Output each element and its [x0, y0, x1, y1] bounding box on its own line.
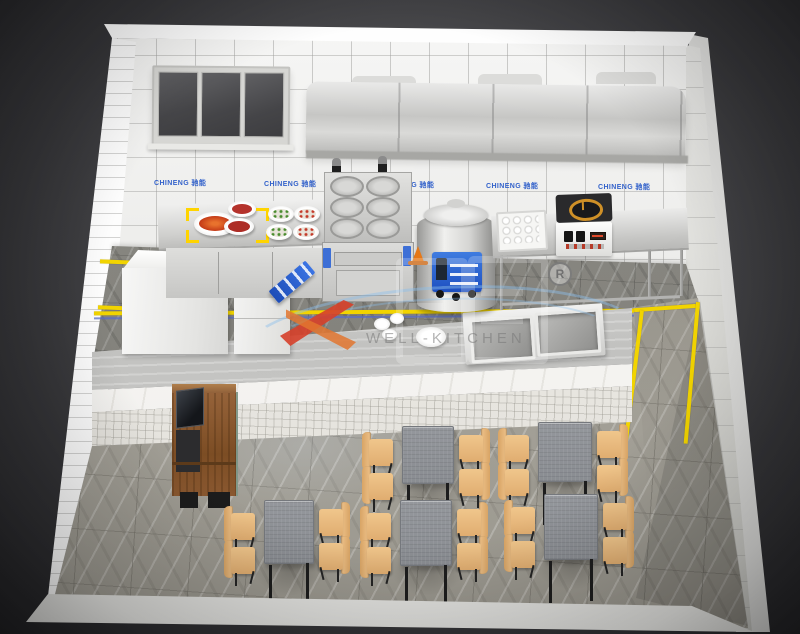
window-pane [158, 71, 199, 136]
brand-banner: CHINENG 驰能 [264, 179, 316, 190]
dining-table [264, 500, 314, 564]
induction-dial-needle [582, 202, 584, 210]
soup-kettle-knob [436, 290, 444, 298]
cashier-station [172, 384, 236, 508]
meat-plate [228, 201, 256, 217]
soup-kettle-lid-knob [447, 199, 465, 208]
cooker-knob [576, 231, 585, 242]
noodle-cooker-control-panel [323, 248, 331, 268]
meat-food [232, 204, 252, 214]
noodle-cooker-drawer [334, 252, 402, 266]
salad-food [298, 209, 316, 219]
salad-food [297, 227, 315, 237]
sink-basin [469, 315, 536, 363]
dining-chair [600, 528, 634, 576]
kitchen-3d-rendering: CHINENG 驰能 CHINENG 驰能 CHINENG 驰能 CHINENG… [0, 0, 800, 634]
dining-chair [360, 538, 394, 586]
focus-bracket [186, 230, 199, 243]
dining-set [504, 488, 636, 586]
noodle-basket [366, 218, 400, 239]
dining-table [544, 494, 598, 560]
safety-cone-base [408, 261, 428, 265]
window [152, 65, 291, 146]
counter-bowl [382, 329, 397, 340]
window-sill [148, 143, 294, 150]
safety-cone [412, 246, 424, 262]
dining-chair [224, 538, 258, 586]
salad-bowl [266, 224, 292, 240]
noodle-basket [330, 176, 364, 197]
dining-table [402, 426, 454, 484]
salad-bowl [293, 224, 319, 240]
cooker-temperature-strip [566, 244, 604, 249]
induction-cooktop [556, 193, 613, 223]
window-pane [201, 72, 242, 137]
soup-kettle-label [432, 252, 482, 292]
dining-table [400, 500, 452, 566]
soup-kettle-knob [452, 293, 460, 301]
noodle-basket [330, 197, 364, 218]
noodle-basket [330, 218, 364, 239]
brand-banner: CHINENG 驰能 [486, 181, 538, 192]
induction-cooker-base [556, 222, 612, 256]
dining-chair [316, 534, 350, 582]
noodle-basket [366, 197, 400, 218]
counter-bowl-large [416, 327, 446, 347]
salad-bowl [294, 206, 320, 222]
cashier-divider [172, 462, 236, 465]
salad-food [272, 209, 290, 219]
hood-duct [596, 72, 656, 84]
dining-set [224, 494, 356, 592]
double-sink [462, 303, 605, 365]
brand-banner: CHINENG 驰能 [598, 182, 650, 193]
prep-cabinet-seam [234, 318, 290, 319]
pos-monitor [176, 387, 204, 428]
noodle-cooker-door [336, 270, 400, 296]
cabinet-seam [218, 252, 219, 294]
window-pane [244, 72, 285, 137]
cooker-display [590, 232, 606, 240]
salad-food [270, 227, 288, 237]
focus-bracket [186, 208, 199, 221]
steamer-tray [496, 210, 548, 253]
meat-plate [224, 218, 254, 235]
salad-bowl [268, 206, 294, 222]
noodle-basket [366, 176, 400, 197]
dining-chair [504, 532, 538, 580]
label-text-lines [450, 259, 478, 285]
dining-set [360, 494, 492, 592]
brand-banner: CHINENG 驰能 [154, 178, 206, 189]
soup-kettle-knob [468, 290, 476, 298]
label-person-photo [436, 258, 447, 280]
counter-bowl [390, 313, 404, 324]
dining-table [538, 422, 592, 482]
induction-dial [569, 198, 604, 221]
cashier-shelf-inset [176, 430, 200, 472]
sink-basin [535, 308, 602, 356]
meat-food [228, 221, 250, 232]
exhaust-hood [306, 81, 687, 160]
steamed-buns [500, 214, 539, 244]
cooker-knob [564, 231, 573, 242]
dining-chair [454, 534, 488, 582]
cashier-foot [180, 492, 198, 508]
